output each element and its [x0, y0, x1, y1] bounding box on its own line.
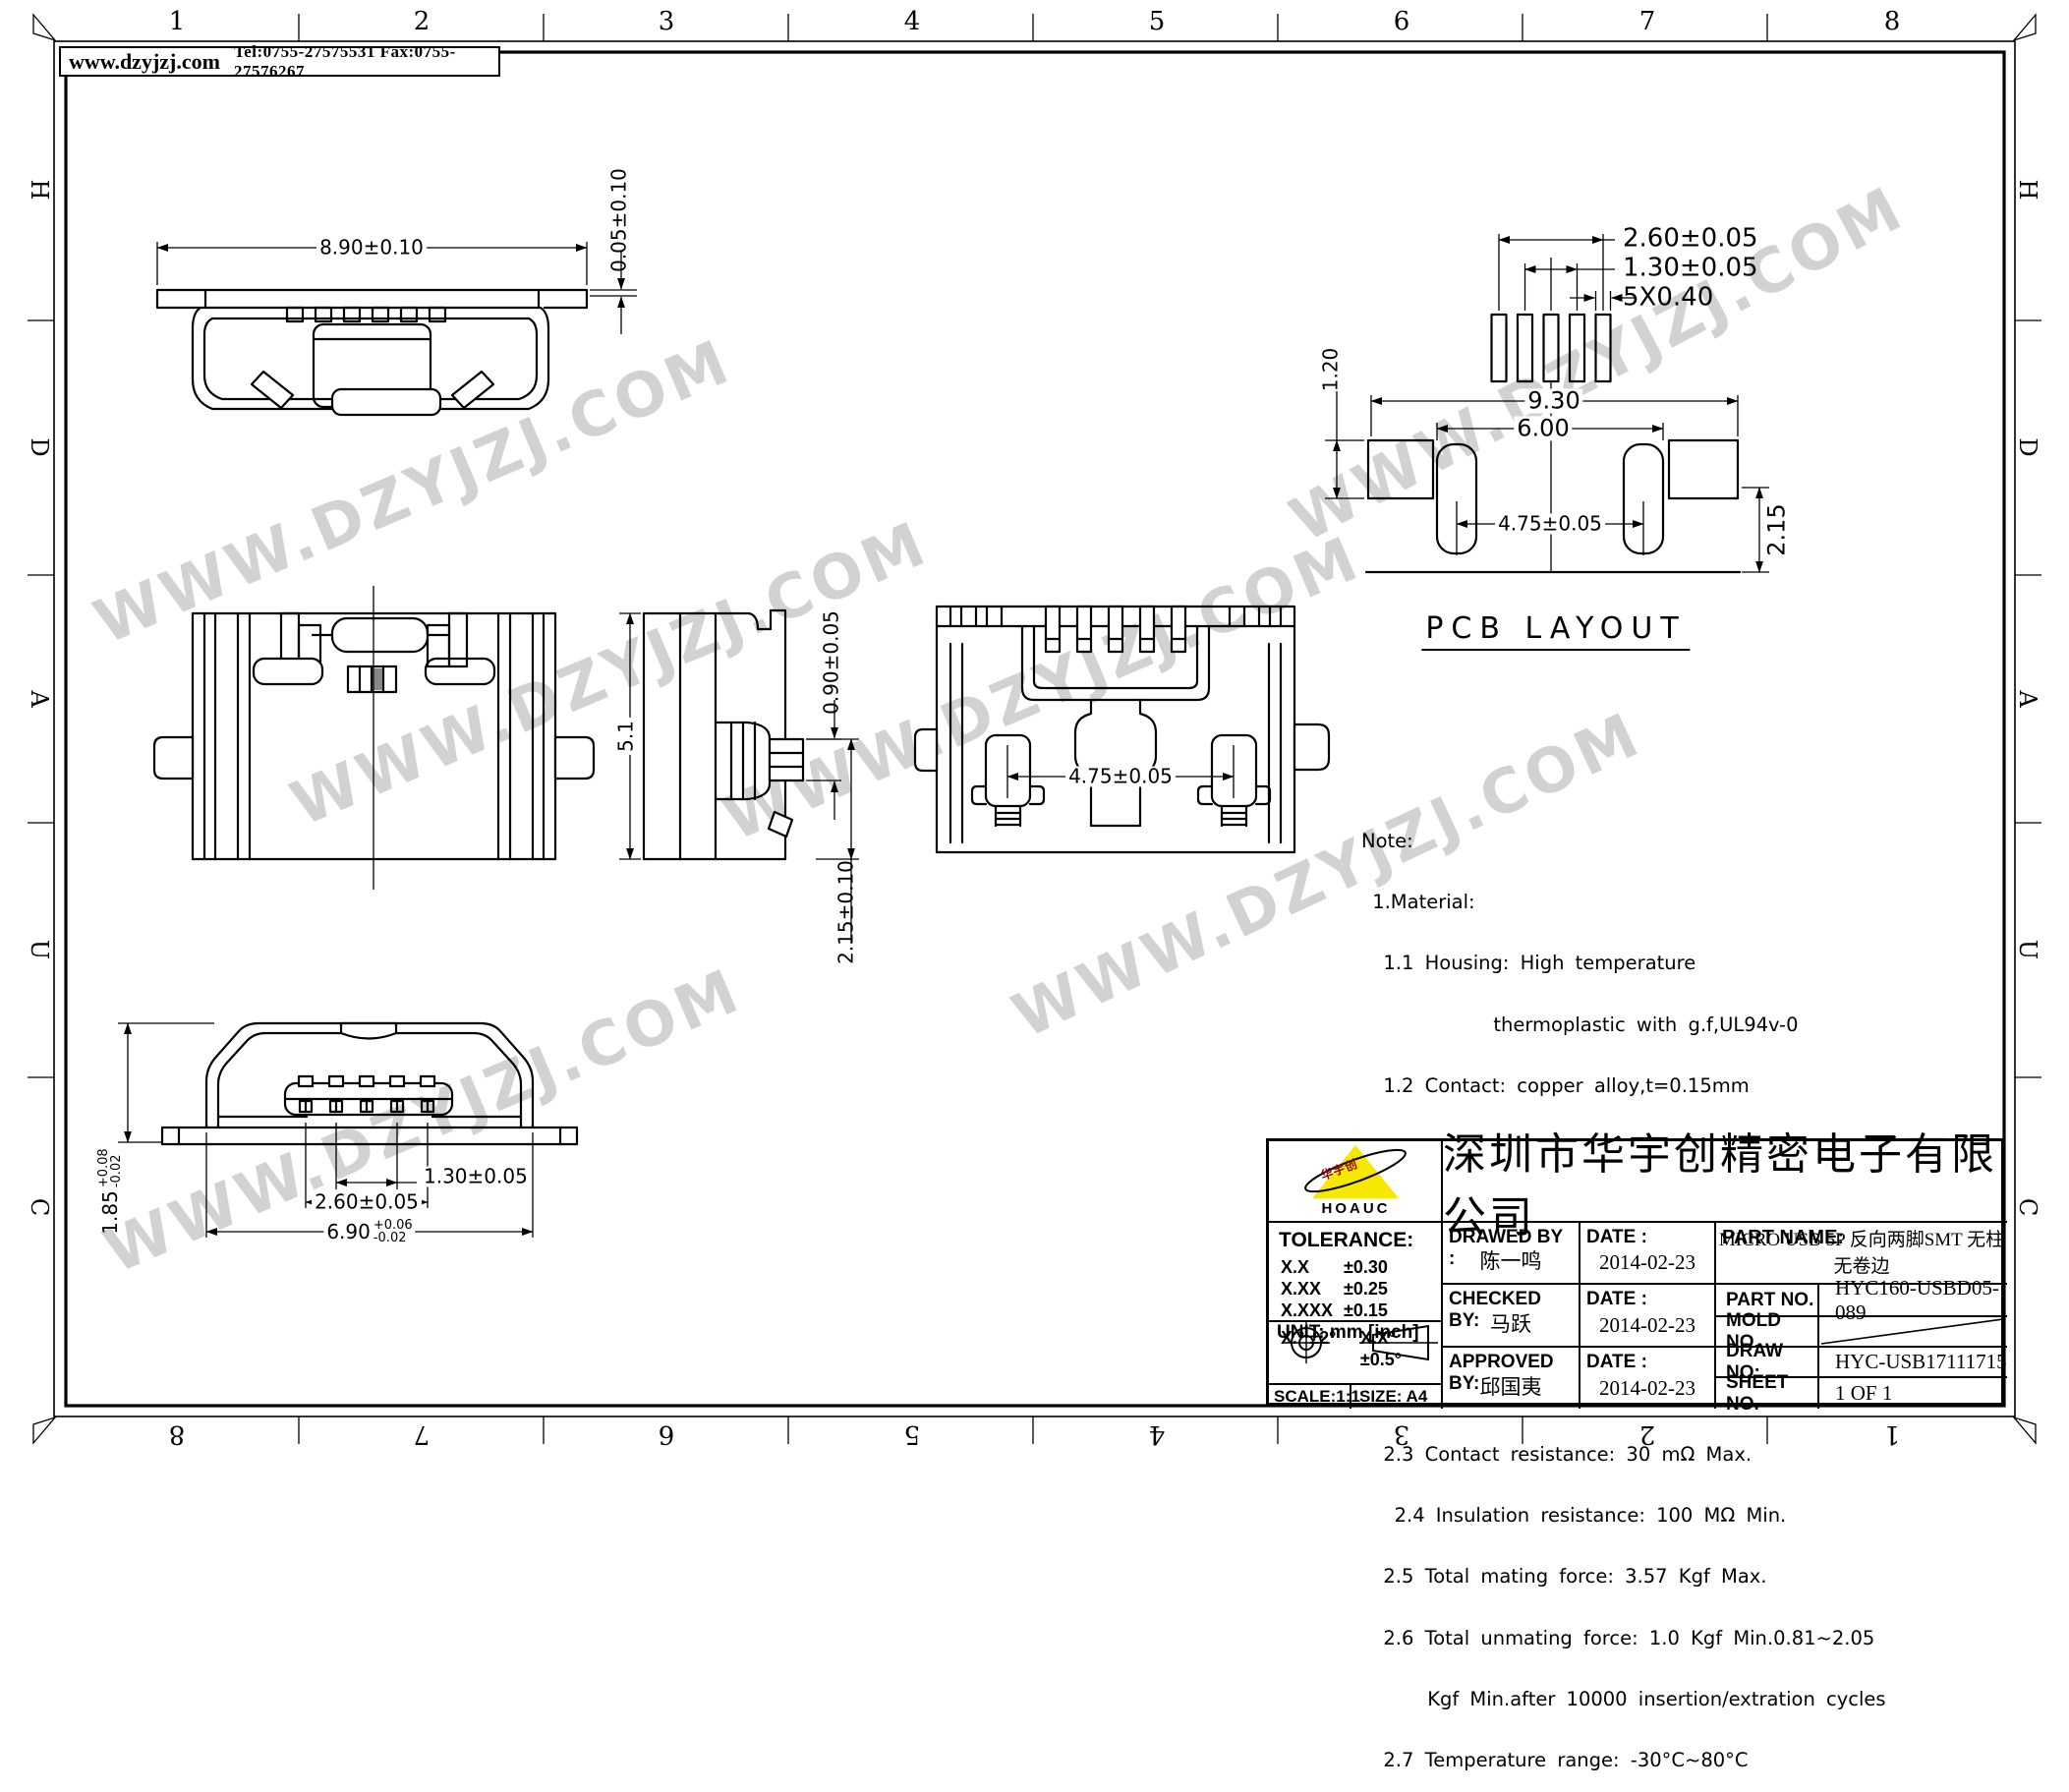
zone-col-label: 4	[1149, 1419, 1166, 1449]
dim-pcb-span: 2.60±0.05	[1620, 225, 1761, 252]
note-line: 2.7 Temperature range: -30°C~80°C	[1361, 1751, 1886, 1771]
part-name-value: MICRO USB 5P 反向两脚SMT 无柱无卷边	[1716, 1225, 2007, 1278]
logo-text: HOAUC	[1269, 1200, 1443, 1217]
checked-by-cell: CHECKED BY: 马跃	[1443, 1285, 1580, 1348]
zone-col-label: 1	[169, 7, 186, 36]
note-line: 2.5 Total mating force: 3.57 Kgf Max.	[1361, 1567, 1886, 1588]
zone-col-label: 8	[169, 1419, 186, 1449]
drawed-by-cell: DRAWED BY : 陈一鸣	[1443, 1223, 1580, 1285]
dim-front-width: 8.90±0.10	[316, 238, 427, 259]
dim-pcb-pad: 5X0.40	[1620, 284, 1716, 311]
zone-row-label: H	[26, 180, 53, 201]
approved-by-cell: APPROVED BY: 邱国夷	[1443, 1348, 1580, 1409]
contact-text: Tel:0755-27575531 Fax:0755-27576267	[234, 42, 498, 82]
projection-cone-icon	[1359, 1326, 1438, 1359]
zone-row-label: C	[26, 1198, 53, 1216]
zone-row-label: C	[2014, 1198, 2041, 1216]
zone-col-label: 6	[659, 1419, 675, 1449]
tol-val: ±0.15	[1344, 1300, 1388, 1321]
projection-unit-cell: UNIT: mm [inch]	[1269, 1322, 1443, 1385]
note-line: 1.2 Contact: copper alloy,t=0.15mm	[1361, 1076, 1886, 1097]
dim-front-offset: 0.05±0.10	[609, 165, 630, 275]
note-line: Note:	[1361, 832, 1886, 852]
dim-pcb-edge: 2.15	[1764, 500, 1789, 558]
watermark-text: WWW.DZYJZJ.COM	[1279, 172, 1916, 556]
sheet-no-value: 1 OF 1	[1819, 1378, 2007, 1409]
note-line: 1.Material:	[1361, 893, 1886, 913]
zone-col-label: 4	[904, 7, 921, 36]
dim-pcb-feet: 4.75±0.05	[1495, 514, 1605, 535]
dim-pcb-inner: 6.00	[1514, 416, 1572, 440]
dim-tol-minus: -0.02	[110, 1148, 123, 1187]
drawed-date: 2014-02-23	[1580, 1250, 1714, 1275]
dim-pcb-pad-height: 1.20	[1321, 345, 1342, 395]
dim-side-pin: 0.90±0.05	[822, 607, 842, 718]
tol-key: X.XXX	[1281, 1300, 1344, 1321]
sheet-no-label: SHEET NO.	[1716, 1378, 1819, 1409]
zone-row-label: H	[2014, 180, 2041, 201]
pcb-layout-title: PCB LAYOUT	[1421, 611, 1690, 651]
engineering-drawing-page: { "header": { "website": "www.dzyjzj.com…	[0, 0, 2069, 1463]
dim-face-span: 2.60±0.05	[312, 1192, 422, 1213]
tolerance-row: X.XXX ±0.15	[1269, 1300, 1441, 1321]
zone-row-label: A	[2014, 690, 2041, 707]
zone-col-label: 7	[1639, 7, 1656, 36]
checked-by-name: 马跃	[1443, 1308, 1579, 1338]
dim-bottom-feet: 4.75±0.05	[1065, 767, 1176, 787]
zone-col-label: 5	[904, 1419, 921, 1449]
zone-col-label: 5	[1149, 7, 1166, 36]
scale-label: SCALE:1:1	[1269, 1385, 1351, 1409]
mold-no-blank-diagonal	[1819, 1317, 2005, 1346]
mold-no-value	[1819, 1317, 2007, 1348]
dim-tol-minus: -0.02	[374, 1232, 413, 1244]
drawed-by-name: 陈一鸣	[1443, 1245, 1579, 1275]
draw-no-value: HYC-USB17111715	[1819, 1348, 2007, 1378]
tol-val: ±0.30	[1344, 1256, 1388, 1278]
dim-face-width-tolerance: +0.06 -0.02	[374, 1219, 413, 1244]
approved-date: 2014-02-23	[1580, 1376, 1714, 1401]
title-block: 华宇创 HOAUC 深圳市华宇创精密电子有限公司 TOLERANCE: X.X …	[1266, 1138, 2004, 1406]
dim-face-pitch: 1.30±0.05	[421, 1167, 531, 1187]
dim-face-height-tolerance: +0.08 -0.02	[97, 1148, 123, 1187]
tol-key: X.XX	[1281, 1278, 1344, 1300]
zone-row-label: A	[26, 690, 53, 707]
dim-side-height: 5.1	[616, 718, 637, 755]
note-line: 2.4 Insulation resistance: 100 MΩ Min.	[1361, 1506, 1886, 1527]
size-label: SIZE: A4	[1351, 1385, 1443, 1409]
tol-key: X.X	[1281, 1256, 1344, 1278]
website-text: www.dzyjzj.com	[69, 49, 220, 75]
company-name: 深圳市华宇创精密电子有限公司	[1443, 1141, 2007, 1223]
zone-row-label: D	[2014, 437, 2041, 456]
checked-date: 2014-02-23	[1580, 1313, 1714, 1338]
zone-col-label: 7	[414, 1419, 431, 1449]
zone-row-label: U	[2014, 940, 2041, 959]
zone-row-label: U	[26, 940, 53, 959]
watermark-text: WWW.DZYJZJ.COM	[85, 325, 742, 659]
date-label: DATE :	[1586, 1227, 1708, 1248]
date-label: DATE :	[1586, 1289, 1708, 1310]
date-label: DATE :	[1586, 1352, 1708, 1373]
zone-col-label: 2	[414, 7, 431, 36]
zone-col-label: 6	[1394, 7, 1410, 36]
header-contact-box: www.dzyjzj.com Tel:0755-27575531 Fax:075…	[59, 46, 500, 77]
zone-col-label: 3	[659, 7, 675, 36]
approved-by-name: 邱国夷	[1443, 1371, 1579, 1401]
zone-col-label: 8	[1884, 7, 1901, 36]
zone-row-label: D	[26, 437, 53, 456]
note-line: 2.3 Contact resistance: 30 mΩ Max.	[1361, 1445, 1886, 1466]
dim-face-width: 6.90 +0.06 -0.02	[323, 1219, 415, 1244]
dim-pcb-outer: 9.30	[1524, 388, 1582, 413]
tolerance-row: X.X ±0.30	[1269, 1256, 1441, 1278]
checked-date-cell: DATE : 2014-02-23	[1580, 1285, 1716, 1348]
note-line: 2.6 Total unmating force: 1.0 Kgf Min.0.…	[1361, 1629, 1886, 1649]
tolerance-cell: TOLERANCE: X.X ±0.30 X.XX ±0.25 X.XXX ±0…	[1269, 1223, 1443, 1322]
projection-symbols	[1269, 1322, 1439, 1363]
part-no-value: HYC160-USBD05-089	[1819, 1285, 2007, 1317]
watermark-text: WWW.DZYJZJ.COM	[94, 954, 752, 1288]
dim-pcb-pitch: 1.30±0.05	[1620, 255, 1761, 281]
tolerance-label: TOLERANCE:	[1269, 1223, 1441, 1256]
company-logo: 华宇创 HOAUC	[1269, 1141, 1443, 1223]
note-line: Kgf Min.after 10000 insertion/extration …	[1361, 1690, 1886, 1710]
tol-val: ±0.25	[1344, 1278, 1388, 1300]
dim-face-height: 1.85 +0.08 -0.02	[97, 1145, 123, 1237]
zone-col-label: 1	[1884, 1419, 1901, 1449]
dim-face-height-main: 1.85	[100, 1190, 121, 1235]
approved-date-cell: DATE : 2014-02-23	[1580, 1348, 1716, 1409]
note-line: thermoplastic with g.f,UL94v-0	[1361, 1015, 1886, 1036]
note-line: 1.1 Housing: High temperature	[1361, 954, 1886, 974]
drawed-date-cell: DATE : 2014-02-23	[1580, 1223, 1716, 1285]
dim-face-width-main: 6.90	[326, 1222, 371, 1243]
dim-side-bottom: 2.15±0.10	[836, 857, 857, 967]
projection-target-icon	[1283, 1322, 1330, 1363]
tolerance-row: X.XX ±0.25	[1269, 1278, 1441, 1300]
